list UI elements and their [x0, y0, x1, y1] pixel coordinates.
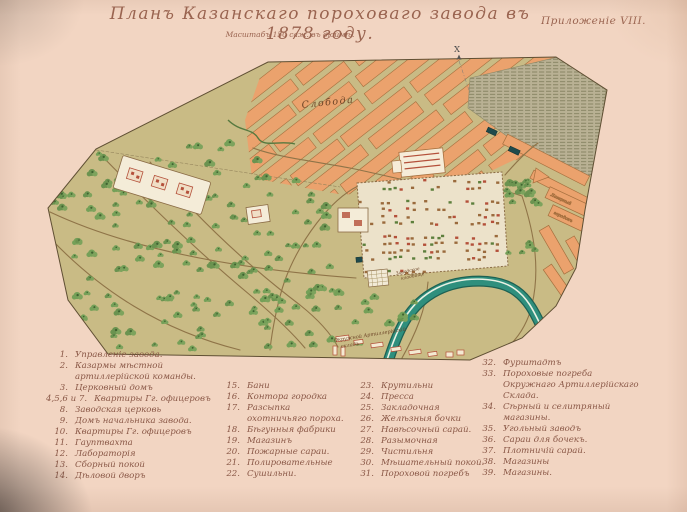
legend-item-number: 12. [46, 449, 68, 460]
shore-buildings [503, 134, 595, 209]
legend-item: 32.Фурштадтъ [474, 358, 642, 369]
legend-item-label: Гауптвахта [75, 438, 226, 449]
legend-item-number: 14. [46, 471, 68, 482]
legend-item-number: 16. [218, 392, 240, 403]
legend-item-number: 31. [352, 469, 374, 480]
legend-item-number: 38. [474, 457, 496, 468]
map-outline [48, 57, 607, 360]
legend-item-number: 35. [474, 424, 496, 435]
legend-item: 3.Церковный домъ [46, 383, 226, 394]
legend-item: 8.Заводская церковь [46, 405, 226, 416]
legend-item-number: 39. [474, 468, 496, 479]
legend-item: 22.Сушильни. [218, 469, 344, 480]
legend-item-label: Квартиры Гг. офицеровъ [75, 427, 226, 438]
legend-item: 35.Угольный заводъ [474, 424, 642, 435]
legend-item: 4,5,6 и 7.Квартиры Гг. офицеровъ [46, 394, 226, 405]
legend-item-label: Фурштадтъ [503, 358, 642, 369]
legend-item: 34.Сѣрный и селитряный магазины. [474, 402, 642, 424]
water-region [468, 57, 606, 180]
legend-item-number: 10. [46, 427, 68, 438]
legend-item-label: Церковный домъ [75, 383, 226, 394]
stream [228, 120, 295, 144]
legend-item: 18.Бѣгунныя фабрики [218, 425, 344, 436]
legend-item-label: Лабораторія [75, 449, 226, 460]
legend-item-number: 20. [218, 447, 240, 458]
map-ground [48, 57, 607, 360]
factory-compound [357, 172, 508, 278]
camp-label-2: городокъ [553, 210, 574, 223]
legend-item-label: Сборный покой [75, 460, 226, 471]
roads [50, 143, 538, 358]
camp-buildings: Лагерный городокъ [539, 187, 604, 307]
legend-item: 17.Разсыпка охотничьяго пороха. [218, 403, 344, 425]
legend-item: 36.Сараи для бочекъ. [474, 435, 642, 446]
legend-item: 11.Гауптвахта [46, 438, 226, 449]
legend-item-number: 27. [352, 425, 374, 436]
powder-magazine-buildings [356, 127, 520, 262]
legend-item-number: 21. [218, 458, 240, 469]
legend-item-label: Дѣловой дворъ [75, 471, 226, 482]
annex-label: Приложеніе VIII. [541, 15, 646, 27]
legend-item: 37.Плотничій сарай. [474, 446, 642, 457]
artillery-depot-buildings [333, 335, 464, 357]
legend-item-number: 25. [352, 403, 374, 414]
legend-item-number: 9. [46, 416, 68, 427]
north-mark-label: X [454, 45, 461, 55]
legend-item-label: Магазинъ [247, 436, 344, 447]
depot-label-2: складъ [340, 341, 360, 350]
legend-item-number: 13. [46, 460, 68, 471]
legend-item-label: Плотничій сарай. [503, 446, 642, 457]
legend-item-label: Сѣрный и селитряный магазины. [503, 402, 642, 424]
legend-item-label: Магазины. [503, 468, 642, 479]
legend-item-number: 19. [218, 436, 240, 447]
legend-item-label: Угольный заводъ [503, 424, 642, 435]
legend-column-1: 1.Управленіе завода.2.Казармы мѣстной ар… [46, 350, 226, 482]
forest [51, 139, 543, 351]
legend-item-number: 15. [218, 381, 240, 392]
legend-item-number: 1. [46, 350, 68, 361]
legend-item-label: Пороховые погреба Окружнаго Артиллерійск… [503, 369, 642, 402]
legend-column-2: 15.Бани16.Контора городка17.Разсыпка охо… [218, 381, 344, 480]
legend-item-number: 32. [474, 358, 496, 369]
legend-item-number: 22. [218, 469, 240, 480]
legend-item-number: 8. [46, 405, 68, 416]
legend-item: 10.Квартиры Гг. офицеровъ [46, 427, 226, 438]
legend-item-number: 18. [218, 425, 240, 436]
legend-item: 14.Дѣловой дворъ [46, 471, 226, 482]
legend-item-number: 34. [474, 402, 496, 413]
legend-item-number: 36. [474, 435, 496, 446]
legend-item-number: 3. [46, 383, 68, 394]
legend-item: 13.Сборный покой [46, 460, 226, 471]
city-blocks [125, 0, 687, 359]
scanned-map-page: { "page": { "title": "Планъ Казанскаго п… [0, 0, 687, 512]
legend-item-number: 30. [352, 458, 374, 469]
barracks-building [391, 148, 445, 178]
legend-item-label: Бани [247, 381, 344, 392]
legend-item-label: Казармы мѣстной артиллерійской команды. [75, 361, 226, 383]
depot-label-1: Окружной Артиллерійскій [333, 327, 406, 344]
legend-item-label: Бѣгунныя фабрики [247, 425, 344, 436]
legend-item: 2.Казармы мѣстной артиллерійской команды… [46, 361, 226, 383]
cemetery [367, 269, 389, 287]
legend-item: 21.Полировательные [218, 458, 344, 469]
legend-item-number: 33. [474, 369, 496, 380]
camp-label-1: Лагерный [549, 192, 572, 206]
compound-buildings [358, 179, 499, 275]
legend-item-number: 2. [46, 361, 68, 372]
legend-item-label: Разсыпка охотничьяго пороха. [247, 403, 344, 425]
legend-item-label: Квартиры Гг. офицеровъ [94, 394, 226, 405]
legend-item: 20.Пожарные сараи. [218, 447, 344, 458]
legend-item-label: Домъ начальника завода. [75, 416, 226, 427]
legend-item-label: Полировательные [247, 458, 344, 469]
forest-enclosures [113, 155, 368, 232]
legend-item: 39.Магазины. [474, 468, 642, 479]
legend-column-4: 32.Фурштадтъ33.Пороховые погреба Окружна… [474, 358, 642, 479]
legend-item-label: Заводская церковь [75, 405, 226, 416]
legend-item: 15.Бани [218, 381, 344, 392]
river [385, 279, 558, 368]
legend-item-label: Пожарные сараи. [247, 447, 344, 458]
legend-item-label: Сушильни. [247, 469, 344, 480]
sloboda-label: Слобода [301, 95, 355, 111]
legend-item-number: 26. [352, 414, 374, 425]
legend-item-number: 11. [46, 438, 68, 449]
cemetery-label-2: кладбище [400, 270, 425, 282]
legend-item: 1.Управленіе завода. [46, 350, 226, 361]
legend-item: 19.Магазинъ [218, 436, 344, 447]
cemetery-label-1: Заводское [395, 266, 420, 277]
legend-item-number: 24. [352, 392, 374, 403]
legend-item-label: Магазины [503, 457, 642, 468]
legend-item: 38.Магазины [474, 457, 642, 468]
legend-item: 16.Контора городка [218, 392, 344, 403]
legend-item-label: Управленіе завода. [75, 350, 226, 361]
legend-item: 9.Домъ начальника завода. [46, 416, 226, 427]
legend-item-number: 37. [474, 446, 496, 457]
legend-item: 12.Лабораторія [46, 449, 226, 460]
scale-note: Масштабъ 150 саж. въ дюймѣ. [200, 30, 380, 39]
legend-item-label: Сараи для бочекъ. [503, 435, 642, 446]
legend-item-number: 4,5,6 и 7. [46, 394, 87, 405]
legend-item-number: 28. [352, 436, 374, 447]
legend-item-label: Контора городка [247, 392, 344, 403]
legend-item-number: 23. [352, 381, 374, 392]
legend-item-number: 17. [218, 403, 240, 414]
north-arrow: X [454, 45, 470, 93]
legend-item: 33.Пороховые погреба Окружнаго Артиллері… [474, 369, 642, 402]
legend-item-number: 29. [352, 447, 374, 458]
